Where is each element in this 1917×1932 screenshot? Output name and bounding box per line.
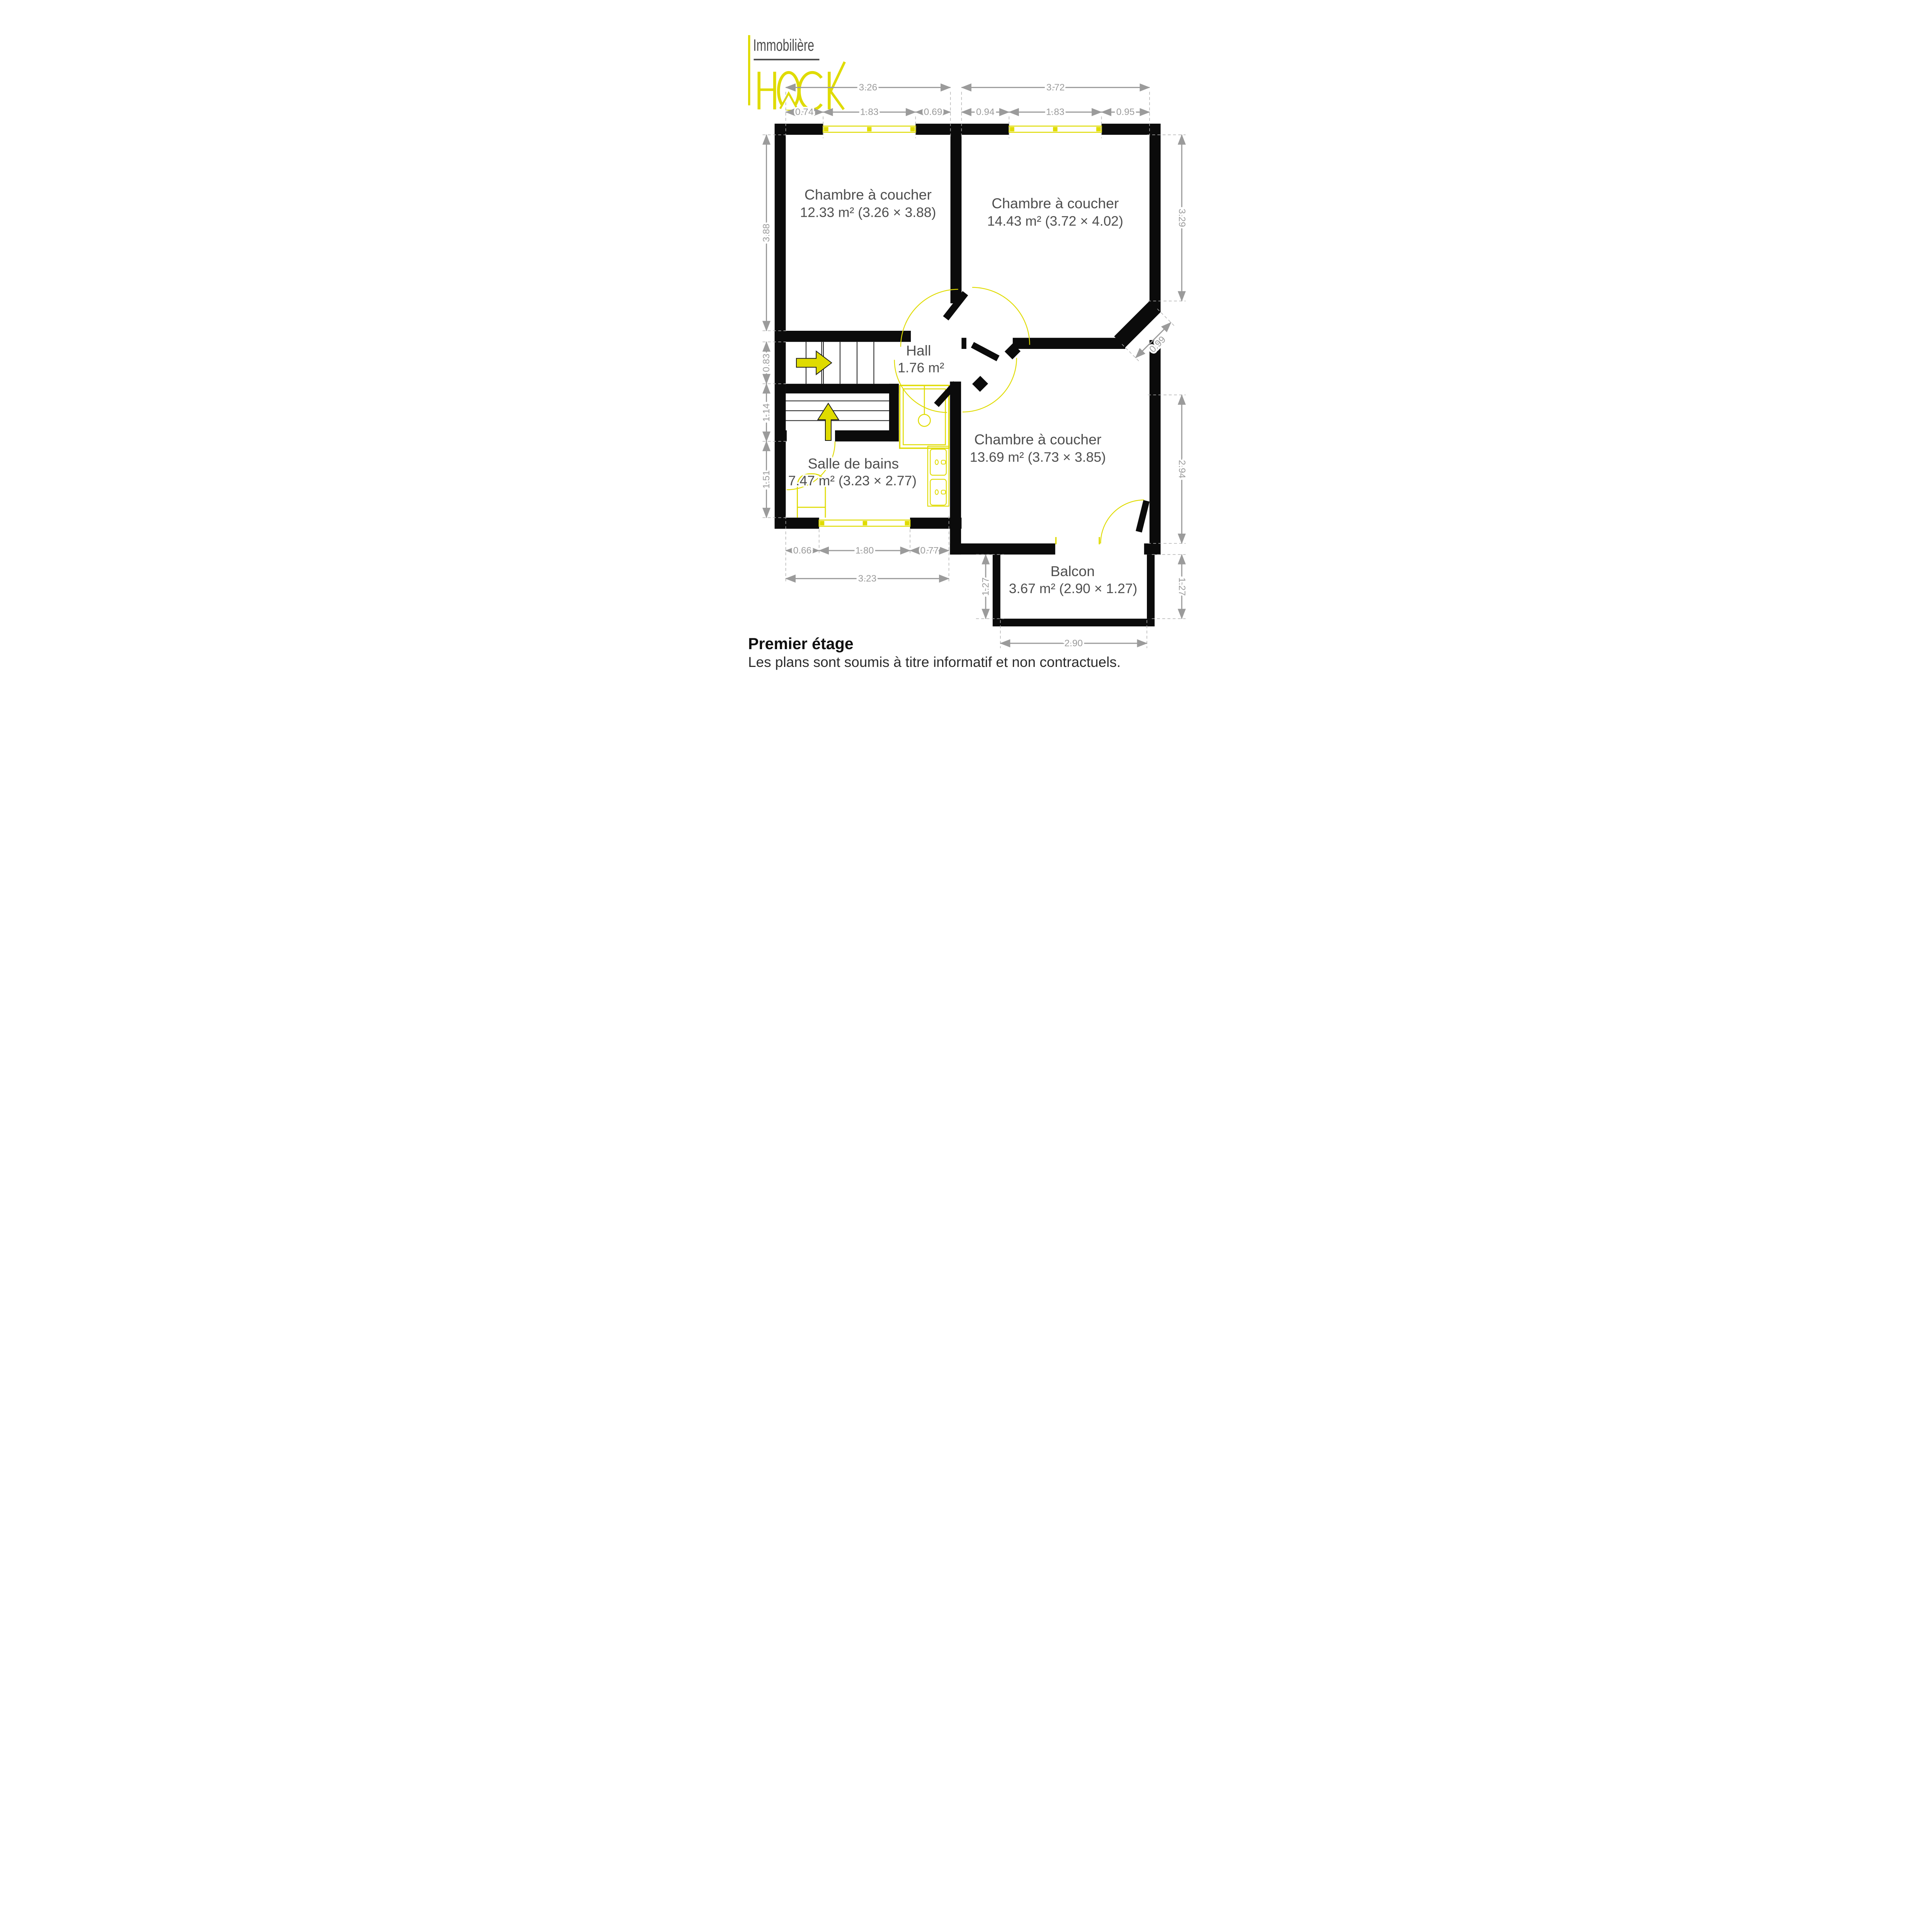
room-label-bedroom2: Chambre à coucher [992, 195, 1119, 211]
balcony-wall-left [992, 554, 1000, 619]
double-sink-icon [927, 446, 949, 506]
room-area-bedroom2: 14.43 m² (3.72 × 4.02) [987, 213, 1123, 229]
logo-tagline: Immobilière [753, 36, 814, 54]
room-area-balcony: 3.67 m² (2.90 × 1.27) [1009, 581, 1137, 596]
dim-label: 0.66 [793, 545, 811, 556]
room-area-hall: 1.76 m² [898, 360, 944, 376]
door-arc-balcony [1101, 500, 1144, 543]
dim-label: 1.27 [980, 577, 991, 596]
dim-label: 0.74 [795, 107, 813, 117]
balcony-opening-jamb [1099, 537, 1100, 544]
disclaimer-text: Les plans sont soumis à titre informatif… [748, 654, 1120, 670]
dim-label: 2.90 [1064, 638, 1083, 648]
dim-label: 1.14 [761, 403, 771, 422]
balcony-wall-right [1147, 554, 1155, 619]
room-area-bedroom1: 12.33 m² (3.26 × 3.88) [800, 204, 936, 220]
dim-label: 1.51 [761, 470, 771, 489]
door-arc-bedroom2 [972, 287, 1029, 345]
dim-label: 2.94 [1176, 460, 1187, 478]
dim-label: 3.72 [1046, 82, 1065, 93]
stair-arrow-right-icon [796, 351, 831, 374]
dim-label: 0.94 [976, 107, 995, 117]
balcony-wall-bottom [992, 619, 1154, 626]
floor-plan-page: Immobilière HOCK [719, 0, 1198, 678]
room-area-bedroom3: 13.69 m² (3.73 × 3.85) [970, 449, 1106, 465]
dim-label: 1.83 [860, 107, 878, 117]
door-arc-bedroom3 [962, 358, 1016, 412]
dim-label: 0.95 [1116, 107, 1135, 117]
logo-accent-bar [748, 35, 750, 105]
window-bedroom1 [823, 126, 915, 132]
door-leaf [1136, 500, 1150, 532]
dim-label: 0.83 [761, 354, 771, 372]
room-label-bedroom3: Chambre à coucher [974, 431, 1101, 447]
room-area-bathroom: 7.47 m² (3.23 × 2.77) [788, 473, 916, 488]
dim-label: 0.69 [924, 107, 942, 117]
doors [786, 287, 1149, 544]
floor-plan-drawing: Immobilière HOCK [719, 0, 1198, 678]
dim-label: 3.23 [858, 573, 876, 584]
dim-label: 0.77 [920, 545, 939, 556]
window-bathroom [819, 520, 910, 526]
dim-label: 3.88 [761, 224, 771, 242]
bathroom-fixtures [797, 385, 949, 517]
room-label-balcony: Balcon [1050, 563, 1095, 579]
dim-label: 1.83 [1046, 107, 1064, 117]
extension-lines [762, 92, 1186, 648]
room-label-bedroom1: Chambre à coucher [804, 186, 931, 202]
logo: Immobilière HOCK [748, 35, 844, 110]
logo-brand-hock-icon: HOCK [757, 62, 844, 110]
window-bedroom2 [1009, 126, 1101, 132]
room-label-bathroom: Salle de bains [808, 455, 899, 471]
dim-label: 3.29 [1176, 209, 1187, 227]
door-leaf [971, 342, 999, 361]
dim-label: 1.80 [855, 545, 874, 556]
dim-label: 1.27 [1176, 577, 1187, 596]
dim-label: 3.26 [859, 82, 877, 93]
room-label-hall: Hall [906, 342, 931, 359]
logo-divider [754, 59, 819, 60]
balcony-opening-jamb [1055, 537, 1056, 544]
floor-title: Premier étage [748, 635, 853, 653]
